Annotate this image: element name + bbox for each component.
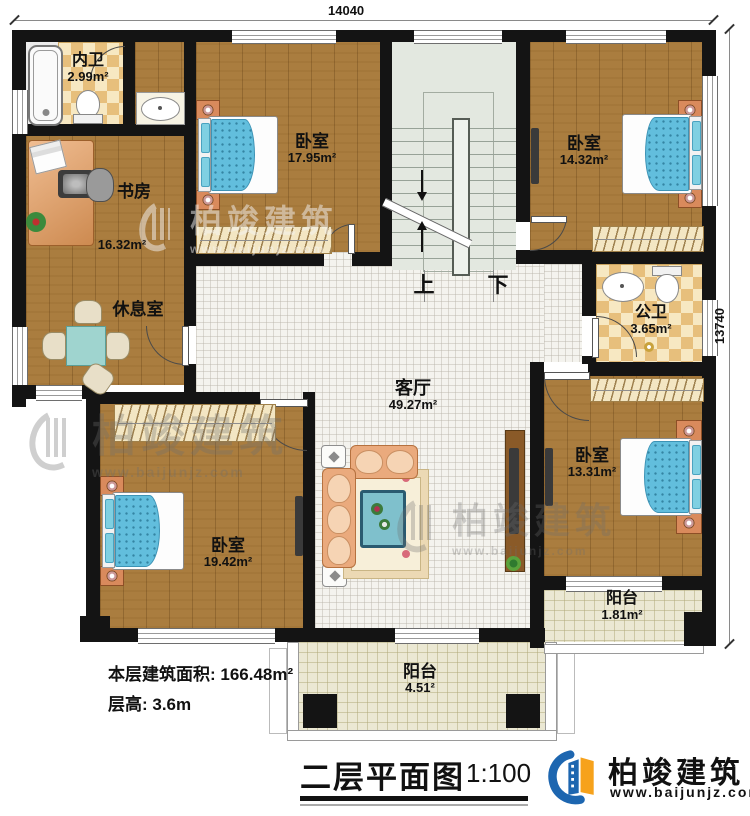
stair-arrow bbox=[417, 192, 427, 201]
brand-logo-icon bbox=[544, 748, 604, 808]
title-underline bbox=[300, 796, 528, 801]
tv bbox=[509, 448, 519, 534]
bed-headboard bbox=[689, 440, 702, 514]
bed bbox=[622, 114, 692, 194]
wardrobe bbox=[590, 378, 704, 402]
room-label-shufang: 书房 bbox=[117, 182, 151, 201]
wall bbox=[516, 30, 530, 222]
sofa-cushion bbox=[327, 474, 351, 503]
sofa-cushion bbox=[355, 450, 383, 474]
room-name: 书房 bbox=[117, 182, 151, 201]
headboard-cushion bbox=[692, 155, 701, 185]
room-name: 内卫 bbox=[67, 52, 108, 70]
room-area: 16.32m² bbox=[98, 238, 146, 253]
bed-headboard bbox=[198, 118, 211, 192]
sink-drain bbox=[158, 106, 162, 110]
toilet-icon bbox=[655, 274, 679, 303]
dimension-label-right: 13740 bbox=[712, 308, 727, 344]
wall bbox=[516, 250, 716, 264]
brand-website: www.baijunjz.com bbox=[610, 784, 750, 800]
door-panel bbox=[531, 216, 567, 223]
rug-flower bbox=[402, 550, 410, 558]
chair bbox=[74, 300, 102, 324]
bed bbox=[620, 438, 692, 516]
wall bbox=[380, 42, 392, 252]
headboard-cushion bbox=[105, 499, 114, 529]
sofa-cushion bbox=[386, 450, 414, 474]
stair-up-label: 上 bbox=[414, 274, 435, 298]
room-label-xiuxishi: 休息室 bbox=[113, 300, 164, 319]
balcony-railing bbox=[287, 730, 557, 741]
bed-blanket bbox=[211, 119, 255, 191]
room-name: 阳台 bbox=[601, 590, 642, 608]
bed-blanket bbox=[644, 441, 689, 513]
window bbox=[138, 628, 275, 644]
headboard-cushion bbox=[692, 445, 701, 475]
room-label-neiwei: 内卫 2.99m² bbox=[67, 52, 108, 84]
plant-icon bbox=[506, 556, 521, 571]
room-area: 19.42m² bbox=[204, 555, 252, 570]
wardrobe bbox=[592, 226, 704, 252]
door-panel bbox=[348, 224, 355, 254]
window bbox=[566, 30, 666, 44]
brand-logo: 柏竣建筑 www.baijunjz.com bbox=[544, 748, 744, 810]
room-label-bedroom-se: 卧室 13.31m² bbox=[568, 446, 616, 480]
room-area: 49.27m² bbox=[389, 398, 437, 413]
dimension-line-top bbox=[14, 20, 714, 21]
room-name: 卧室 bbox=[204, 536, 252, 555]
room-label-bedroom-top: 卧室 17.95m² bbox=[288, 132, 336, 166]
room-name: 卧室 bbox=[288, 132, 336, 151]
room-label-bedroom-ne: 卧室 14.32m² bbox=[560, 134, 608, 168]
desk-chair bbox=[86, 168, 114, 202]
room-label-gongwei: 公卫 3.65m² bbox=[630, 304, 671, 336]
room-name: 卧室 bbox=[568, 446, 616, 465]
wardrobe bbox=[196, 226, 332, 254]
headboard-cushion bbox=[201, 123, 210, 153]
wall bbox=[352, 252, 392, 266]
wall bbox=[100, 392, 260, 404]
stair-arrow bbox=[421, 170, 423, 192]
tv bbox=[545, 448, 553, 506]
bed-blanket bbox=[115, 495, 160, 567]
bathtub bbox=[28, 45, 63, 126]
floor-height-note: 层高: 3.6m bbox=[108, 690, 191, 715]
stair-down-label: 下 bbox=[488, 274, 509, 298]
wall bbox=[530, 376, 544, 648]
room-area: 4.51² bbox=[403, 681, 437, 696]
window bbox=[414, 30, 502, 44]
wall bbox=[582, 264, 596, 316]
stair-arrow bbox=[417, 221, 427, 230]
headboard-cushion bbox=[692, 121, 701, 151]
bed-headboard bbox=[102, 494, 115, 568]
wall bbox=[86, 392, 100, 638]
tv bbox=[295, 496, 303, 556]
balcony-railing bbox=[545, 642, 557, 740]
window bbox=[36, 385, 82, 401]
wall bbox=[184, 364, 196, 394]
window bbox=[702, 76, 718, 206]
lounge-table bbox=[66, 326, 106, 366]
balcony-railing bbox=[287, 642, 299, 740]
window bbox=[12, 90, 28, 134]
headboard-cushion bbox=[201, 157, 210, 187]
room-area: 1.81m² bbox=[601, 608, 642, 623]
drawing-scale: 1:100 bbox=[466, 758, 531, 789]
window bbox=[232, 30, 336, 44]
wall bbox=[588, 362, 716, 376]
wall bbox=[184, 136, 196, 326]
hall-corridor-floor bbox=[544, 264, 582, 362]
tv bbox=[531, 128, 539, 184]
bed-blanket bbox=[645, 117, 689, 191]
window bbox=[12, 327, 28, 385]
dimension-line-right bbox=[729, 30, 730, 644]
wall bbox=[530, 362, 544, 376]
room-area-shufang: 16.32m² bbox=[98, 238, 146, 253]
room-name: 客厅 bbox=[389, 378, 437, 398]
pillar bbox=[303, 694, 337, 728]
bathtub-drain bbox=[42, 109, 49, 116]
sink-drain bbox=[620, 284, 624, 288]
headboard-cushion bbox=[105, 533, 114, 563]
wardrobe bbox=[114, 404, 276, 442]
headboard-cushion bbox=[692, 479, 701, 509]
wall bbox=[184, 252, 324, 266]
room-name: 公卫 bbox=[630, 304, 671, 322]
bed-headboard bbox=[689, 116, 702, 190]
room-label-balcony-bottom: 阳台 4.51² bbox=[403, 662, 437, 696]
drawing-title: 二层平面图 bbox=[300, 752, 465, 797]
balcony-railing bbox=[544, 644, 704, 654]
pillar bbox=[506, 694, 540, 728]
room-name: 阳台 bbox=[403, 662, 437, 681]
sofa bbox=[322, 468, 356, 568]
title-underline-thin bbox=[300, 804, 528, 806]
watermark-logo-icon bbox=[30, 409, 82, 471]
stair-up-text: 上 bbox=[414, 274, 435, 298]
floor-area-note: 本层建筑面积: 166.48m² bbox=[108, 660, 293, 685]
bed bbox=[208, 116, 278, 194]
room-label-bedroom-sw: 卧室 19.42m² bbox=[204, 536, 252, 570]
floor-drain bbox=[644, 342, 654, 352]
wall bbox=[184, 42, 196, 136]
stair-arrow bbox=[421, 230, 423, 252]
door-panel bbox=[592, 318, 599, 358]
floor-plan: 柏竣建筑 www.baijunjz.com 柏竣建筑 www.baijunjz.… bbox=[0, 0, 750, 816]
room-name: 卧室 bbox=[560, 134, 608, 153]
sofa-cushion bbox=[327, 536, 351, 565]
sofa bbox=[350, 445, 418, 479]
dimension-label-top: 14040 bbox=[328, 3, 364, 18]
toilet-tank bbox=[73, 114, 103, 124]
table-flowers bbox=[371, 503, 383, 515]
chair bbox=[42, 332, 66, 360]
balcony-railing bbox=[557, 648, 575, 734]
room-label-balcony-right: 阳台 1.81m² bbox=[601, 590, 642, 622]
room-name: 休息室 bbox=[113, 300, 164, 319]
room-area: 3.65m² bbox=[630, 322, 671, 337]
door-panel bbox=[182, 326, 189, 366]
bed bbox=[112, 492, 184, 570]
room-area: 14.32m² bbox=[560, 153, 608, 168]
stair-down-text: 下 bbox=[488, 274, 509, 298]
window bbox=[395, 628, 479, 644]
table-flowers bbox=[379, 519, 390, 530]
door-panel bbox=[544, 372, 590, 380]
end-table bbox=[321, 445, 346, 468]
room-area: 2.99m² bbox=[67, 70, 108, 85]
coffee-table bbox=[360, 490, 406, 548]
stair-rail bbox=[452, 118, 470, 276]
plant-icon bbox=[26, 212, 46, 232]
room-area: 13.31m² bbox=[568, 465, 616, 480]
sofa-cushion bbox=[327, 505, 351, 534]
room-area: 17.95m² bbox=[288, 151, 336, 166]
chair bbox=[106, 332, 130, 360]
room-label-keting: 客厅 49.27m² bbox=[389, 378, 437, 413]
